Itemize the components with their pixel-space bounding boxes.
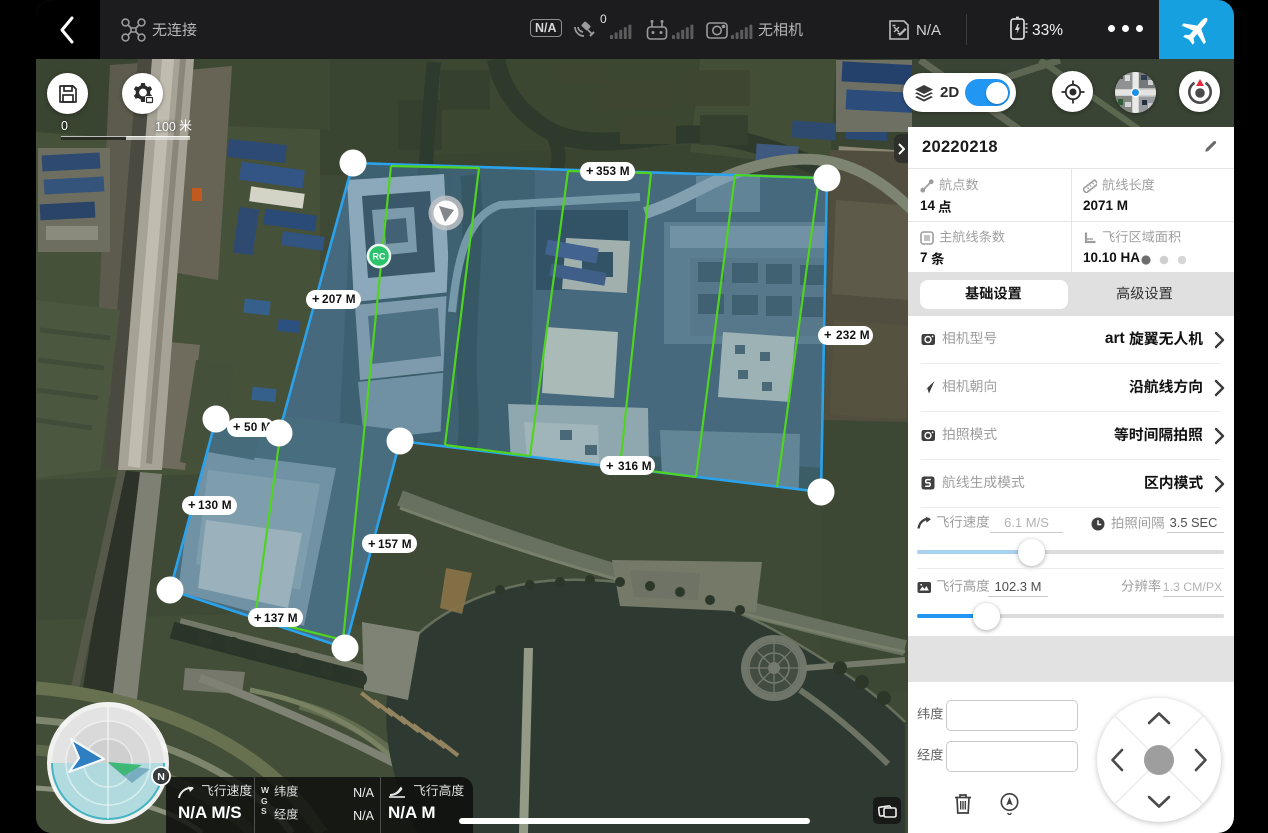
svg-text:+: +	[606, 458, 614, 473]
svg-text:+: +	[233, 419, 241, 434]
svg-text:+: +	[368, 536, 376, 551]
svg-text:+: +	[188, 497, 196, 512]
svg-text:137 M: 137 M	[264, 611, 298, 625]
svg-text:207 M: 207 M	[322, 292, 356, 306]
svg-text:+: +	[824, 327, 832, 342]
svg-text:353 M: 353 M	[596, 164, 630, 178]
svg-text:+: +	[586, 163, 594, 178]
svg-text:316 M: 316 M	[618, 459, 652, 473]
svg-text:+: +	[254, 610, 262, 625]
svg-text:157 M: 157 M	[378, 537, 412, 551]
svg-text:232 M: 232 M	[836, 328, 870, 342]
svg-text:RC: RC	[373, 252, 386, 262]
svg-text:130 M: 130 M	[198, 498, 232, 512]
svg-text:+: +	[312, 291, 320, 306]
svg-text:N: N	[157, 771, 165, 783]
